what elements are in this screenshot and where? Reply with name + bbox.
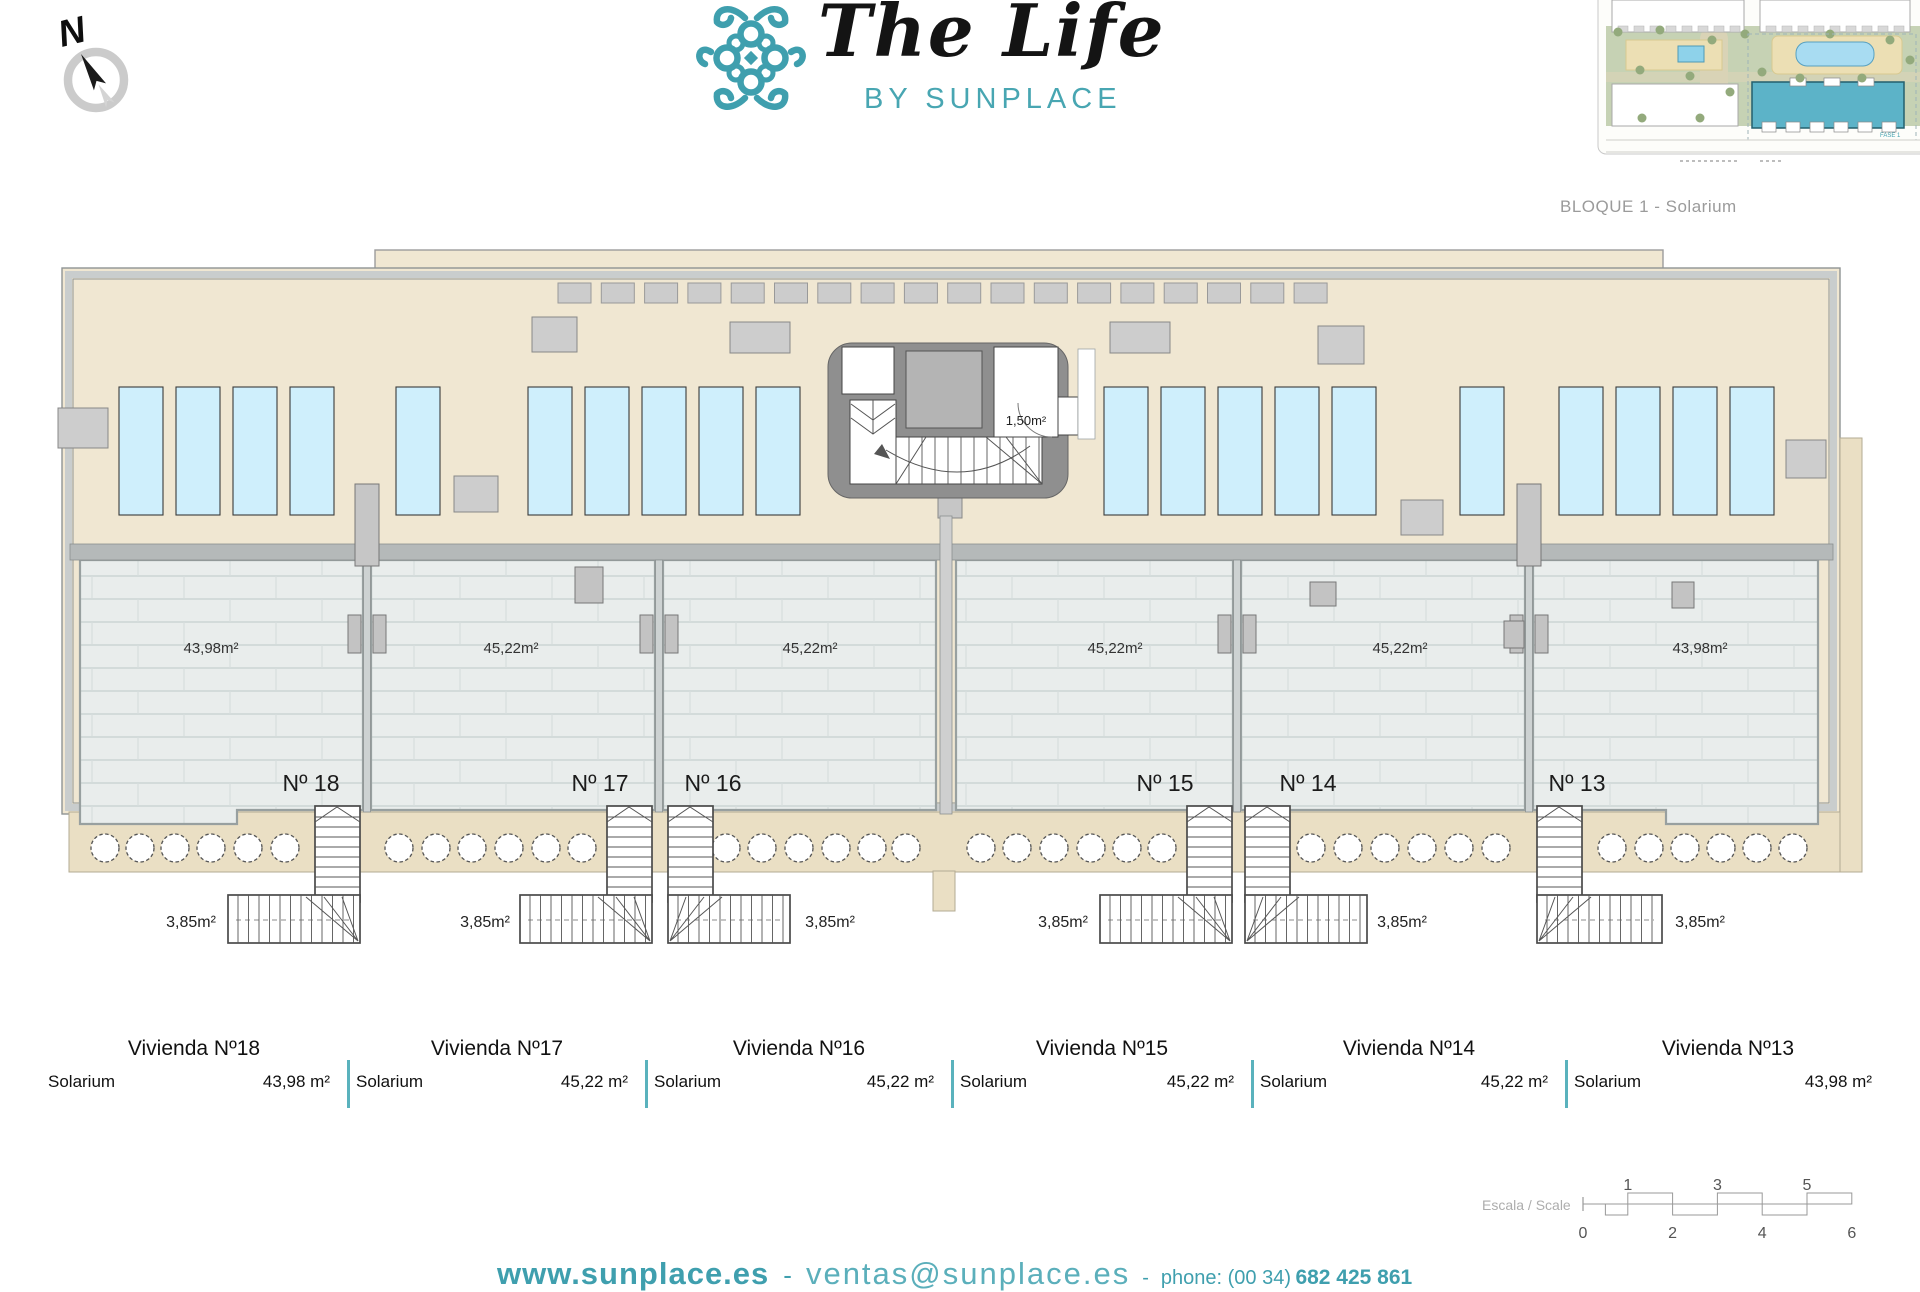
walkway-planter (495, 834, 523, 862)
pergola-post (348, 615, 361, 653)
roof-skylight (58, 408, 108, 448)
pergola-post (575, 567, 603, 603)
walkway-planter (858, 834, 886, 862)
sitemap-tree (1886, 36, 1895, 45)
logo-title: The Life (818, 0, 1166, 73)
walkway-planter (892, 834, 920, 862)
divider-pillar (1517, 484, 1541, 566)
solar-panel (396, 387, 440, 515)
solar-panel (1161, 387, 1205, 515)
walkway-planter (967, 834, 995, 862)
pergola-post (640, 615, 653, 653)
solar-panel (1104, 387, 1148, 515)
pergola-post (373, 615, 386, 653)
walkway-planter (532, 834, 560, 862)
solar-panel (1218, 387, 1262, 515)
terrace-area-label: 45,22m² (483, 640, 538, 657)
walkway-planter (1371, 834, 1399, 862)
sitemap-tree (1708, 36, 1717, 45)
walkway-planter (422, 834, 450, 862)
solar-panel (1559, 387, 1603, 515)
sitemap-caption: BLOQUE 1 - Solarium (1560, 197, 1737, 217)
footer-website-link[interactable]: www.sunplace.es (497, 1256, 769, 1291)
pergola-post (1218, 615, 1231, 653)
terrace-area-label: 43,98m² (1672, 640, 1727, 657)
walkway-planter (1445, 834, 1473, 862)
pergola-post (1535, 615, 1548, 653)
footer-contact-bar: www.sunplace.es-ventas@sunplace.es-phone… (497, 1256, 1412, 1292)
walkway-planter (1003, 834, 1031, 862)
scale-number: 4 (1758, 1225, 1767, 1242)
sunplace-knot-icon (690, 0, 812, 118)
sitemap-building-bloque1 (1752, 82, 1904, 128)
scale-number: 2 (1668, 1225, 1677, 1242)
roof-skylight (1401, 500, 1443, 535)
roof-vent (948, 283, 981, 303)
solar-panel (119, 387, 163, 515)
unit-number-label: Nº 14 (1280, 770, 1337, 796)
walkway-planter (1077, 834, 1105, 862)
roof-skylight (454, 476, 498, 512)
solar-panel (642, 387, 686, 515)
roof-vent (1208, 283, 1241, 303)
roof-vent (991, 283, 1024, 303)
scale-number: 5 (1803, 1177, 1812, 1194)
walkway-planter (785, 834, 813, 862)
sitemap-tree (1758, 68, 1767, 77)
sitemap-tree (1686, 72, 1695, 81)
solar-panel (233, 387, 277, 515)
roof-skylight (1110, 322, 1170, 353)
footer-separator: - (1130, 1267, 1161, 1289)
divider-wall (1234, 560, 1241, 812)
scale-number: 1 (1623, 1177, 1632, 1194)
sitemap-tree (1656, 26, 1665, 35)
unit-number-label: Nº 18 (283, 770, 340, 796)
walkway-planter (1598, 834, 1626, 862)
terrace-area-label: 45,22m² (1087, 640, 1142, 657)
footer-email-link[interactable]: ventas@sunplace.es (806, 1256, 1130, 1291)
roof-vent (601, 283, 634, 303)
solar-panel (1275, 387, 1319, 515)
walkway-planter (385, 834, 413, 862)
divider-wall (364, 560, 371, 812)
sitemap-tree (1636, 66, 1645, 75)
divider-wall (1526, 560, 1533, 812)
solar-panel (1460, 387, 1504, 515)
walkway-planter (1040, 834, 1068, 862)
divider-wall (656, 560, 663, 812)
roof-skylight (730, 322, 790, 353)
sitemap-fase-tag: FASE 1 (1880, 133, 1901, 139)
core-elevator (842, 347, 894, 394)
stair-area-label: 3,85m² (1038, 914, 1088, 931)
stair-area-label: 3,85m² (166, 914, 216, 931)
walkway-planter (748, 834, 776, 862)
floor-plan-canvas: N FASE 1 (0, 0, 1920, 1280)
pergola-post (1310, 582, 1336, 606)
walkway-planter (822, 834, 850, 862)
solar-panel (585, 387, 629, 515)
roof-vent (645, 283, 678, 303)
solar-panel (290, 387, 334, 515)
unit-number-label: Nº 17 (572, 770, 629, 796)
solar-panel (1730, 387, 1774, 515)
core-shaft (906, 351, 982, 428)
walkway-planter (197, 834, 225, 862)
divider-pillar (355, 484, 379, 566)
roof-skylight (1786, 440, 1826, 478)
walkway-planter (1671, 834, 1699, 862)
walkway-planter (234, 834, 262, 862)
roof-vent (1078, 283, 1111, 303)
walkway-planter (1779, 834, 1807, 862)
walkway-planter (1635, 834, 1663, 862)
solar-panel (528, 387, 572, 515)
core-stair-run (896, 437, 1042, 484)
roof-vent (818, 283, 851, 303)
compass-n-label: N (54, 8, 91, 55)
unit-number-label: Nº 13 (1549, 770, 1606, 796)
solar-panel (176, 387, 220, 515)
walkway-planter (1743, 834, 1771, 862)
sitemap-pool (1796, 42, 1874, 66)
solar-panel (699, 387, 743, 515)
terrace-area-label: 43,98m² (183, 640, 238, 657)
sitemap-amenity-deck (1626, 40, 1722, 70)
walkway-planter (712, 834, 740, 862)
stair-area-label: 3,85m² (460, 914, 510, 931)
sitemap-tree (1906, 56, 1915, 65)
roof-vent (731, 283, 764, 303)
walkway-planter (91, 834, 119, 862)
unit-number-label: Nº 16 (685, 770, 742, 796)
walkway-planter (1148, 834, 1176, 862)
sitemap-tree (1614, 28, 1623, 37)
roof-skylight (1318, 326, 1364, 364)
sitemap-tree (1726, 88, 1735, 97)
terrace-area-label: 45,22m² (782, 640, 837, 657)
walkway-right-strip (1840, 438, 1862, 872)
terrace-area-label: 45,22m² (1372, 640, 1427, 657)
walkway-planter (161, 834, 189, 862)
roof-vent (775, 283, 808, 303)
stair-area-label: 3,85m² (1675, 914, 1725, 931)
scale-number: 3 (1713, 1177, 1722, 1194)
sitemap-tree (1858, 74, 1867, 83)
roof-vent (1121, 283, 1154, 303)
walkway-planter (1334, 834, 1362, 862)
sitemap-building-bottom-left (1612, 84, 1738, 126)
walkway-planter (568, 834, 596, 862)
solar-panel (1673, 387, 1717, 515)
core-area-label: 1,50m² (1006, 413, 1047, 428)
roof-skylight (532, 317, 577, 352)
unit-number-label: Nº 15 (1137, 770, 1194, 796)
site-map-thumbnail: FASE 1 (1598, 0, 1920, 161)
roof-vent (1294, 283, 1327, 303)
stair-area-label: 3,85m² (1377, 914, 1427, 931)
sitemap-tree (1696, 114, 1705, 123)
pergola-post (1504, 621, 1524, 648)
roof-vent (861, 283, 894, 303)
walkway-planter (1408, 834, 1436, 862)
north-compass: N (54, 8, 124, 108)
solar-panel (756, 387, 800, 515)
walkway-center-tab (933, 871, 955, 911)
walkway-planter (458, 834, 486, 862)
sitemap-tree (1796, 74, 1805, 83)
pergola-post (1243, 615, 1256, 653)
footer-phone-number: 682 425 861 (1295, 1266, 1412, 1289)
pergola-post (665, 615, 678, 653)
sitemap-small-pool (1678, 46, 1704, 62)
walkway-planter (271, 834, 299, 862)
logo-subtitle: BY SUNPLACE (864, 83, 1122, 116)
walkway-planter (126, 834, 154, 862)
walkway-planter (1297, 834, 1325, 862)
scale-number: 6 (1847, 1225, 1856, 1242)
sitemap-tree (1638, 114, 1647, 123)
roof-vent (688, 283, 721, 303)
roof-vent (558, 283, 591, 303)
roof-vent (1164, 283, 1197, 303)
stair-area-label: 3,85m² (805, 914, 855, 931)
pergola-post (1672, 582, 1694, 608)
footer-separator: - (769, 1260, 806, 1290)
core-door-leaf (1058, 397, 1078, 435)
walkway-planter (1482, 834, 1510, 862)
solar-panel (1332, 387, 1376, 515)
scale-number: 0 (1579, 1225, 1588, 1242)
walkway-planter (1707, 834, 1735, 862)
roof-vent (904, 283, 937, 303)
roof-vent (1034, 283, 1067, 303)
scale-bar: Escala / Scale 1350246 (1482, 1177, 1856, 1242)
center-divider-wall (940, 516, 952, 814)
solar-panel (1616, 387, 1660, 515)
roof-vent (1251, 283, 1284, 303)
walkway-planter (1113, 834, 1141, 862)
scale-label: Escala / Scale (1482, 1197, 1571, 1213)
footer-phone-label: phone: (00 34) (1161, 1267, 1291, 1289)
